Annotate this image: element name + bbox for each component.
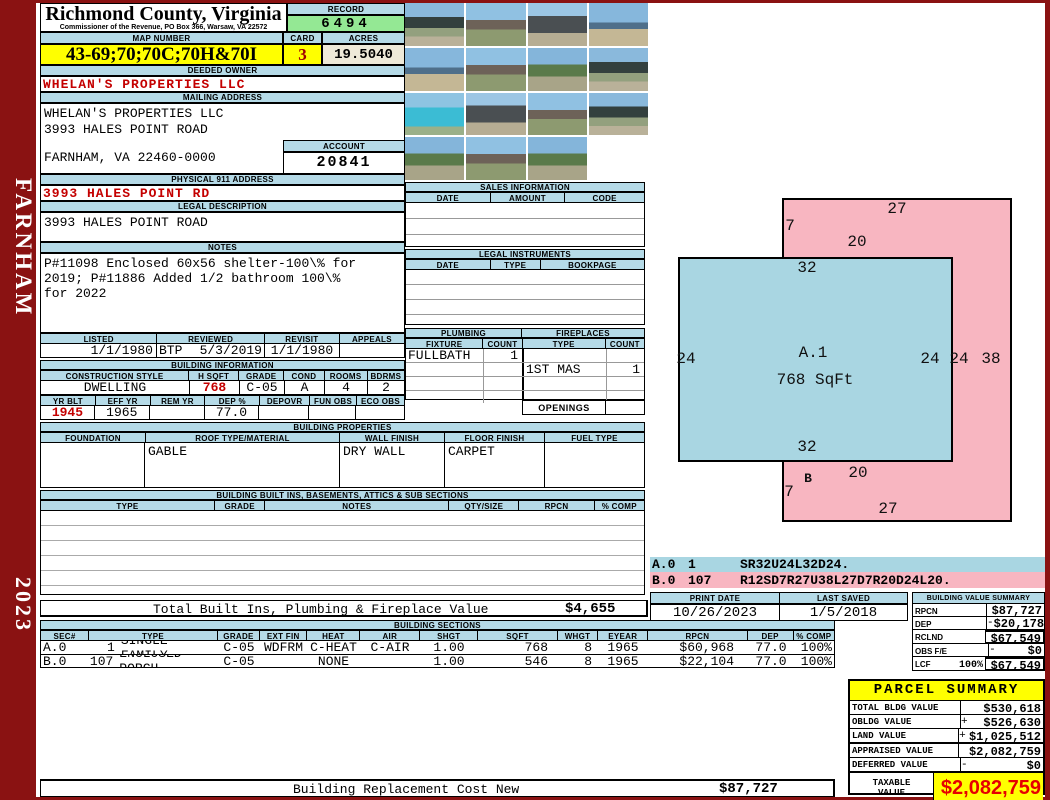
property-photo — [589, 48, 648, 91]
notes-header: NOTES — [40, 242, 405, 253]
last-saved-value: 1/5/2018 — [780, 604, 908, 621]
vector-row-a: A.0 1 SR32U24L32D24. — [650, 557, 1045, 572]
parcel-row-op: + — [961, 715, 971, 728]
property-photo — [405, 48, 464, 91]
effyr-value: 1965 — [95, 406, 150, 419]
row-type: ENCLOSED PORCH — [113, 655, 218, 667]
row-grade: C-05 — [218, 641, 260, 654]
bvs-value-row: - $0 — [989, 644, 1045, 657]
row-comp: 100% — [794, 641, 834, 654]
legal-description-value: 3993 HALES POINT ROAD — [40, 212, 405, 242]
parcel-row-op — [961, 701, 971, 714]
sketch-dim-label: 20 — [848, 464, 867, 482]
revisit-value: 1/1/1980 — [265, 344, 340, 357]
vector-sec: A.0 — [650, 557, 688, 572]
property-photo — [466, 93, 525, 136]
county-subtitle: Commissioner of the Revenue, PO Box 366,… — [41, 24, 286, 31]
dep-value: 77.0 — [205, 406, 260, 419]
card-header: CARD — [283, 32, 322, 44]
hsqft-value: 768 — [190, 381, 240, 394]
sales-row — [406, 219, 644, 235]
plumbing-count-value — [484, 363, 523, 376]
bvs-label: RPCN — [912, 604, 987, 617]
ecoobs-value — [356, 406, 404, 419]
parcel-summary-title: PARCEL SUMMARY — [850, 681, 1043, 701]
plumbing-count-value: 1 — [484, 349, 523, 362]
property-photo — [589, 3, 648, 46]
sketch-dim-label: 24 — [676, 350, 695, 368]
openings-label: OPENINGS — [522, 400, 606, 415]
row-num: 107 — [88, 655, 113, 667]
physical-address-header: PHYSICAL 911 ADDRESS — [40, 174, 405, 185]
plumbing-count-value — [484, 391, 523, 403]
row-num: 1 — [88, 641, 115, 654]
card-value: 3 — [283, 44, 322, 65]
sketch-section-b-name: B — [804, 471, 812, 486]
photo-grid — [405, 3, 648, 180]
built-ins-row — [41, 556, 644, 571]
sketch-dim-label: 27 — [878, 500, 897, 518]
record-value: 6494 — [287, 15, 405, 32]
row-heat: NONE — [307, 655, 360, 667]
fireplaces-header: FIREPLACES — [522, 328, 645, 338]
building-section-row: A.0 1 SINGLE FAMILY C-05 WDFRM C-HEAT C-… — [40, 640, 835, 654]
parcel-row-label: OBLDG VALUE — [850, 715, 961, 728]
bvs-value: $20,178 — [994, 617, 1046, 629]
row-sec: A.0 — [41, 641, 88, 654]
property-photo — [466, 3, 525, 46]
mailing-address-header: MAILING ADDRESS — [40, 92, 405, 103]
row-shgt: 1.00 — [420, 641, 478, 654]
bvs-label: LCF 100% — [912, 657, 986, 671]
parcel-row-op — [959, 744, 969, 757]
vector-num: 1 — [688, 557, 740, 572]
mailing-line-1: WHELAN'S PROPERTIES LLC — [41, 104, 404, 121]
building-properties-header: BUILDING PROPERTIES — [40, 422, 645, 432]
print-date-value: 10/26/2023 — [650, 604, 780, 621]
parcel-row-value: $526,630 — [971, 715, 1043, 728]
built-ins-rows — [40, 510, 645, 595]
total-built-ins-value: $4,655 — [565, 601, 615, 617]
row-grade: C-05 — [218, 655, 260, 667]
bvs-value: $67,549 — [991, 659, 1043, 669]
foundation-value — [41, 443, 145, 487]
bvs-value: $0 — [997, 644, 1044, 656]
deeded-owner-header: DEEDED OWNER — [40, 65, 405, 76]
remyr-value — [150, 406, 205, 419]
reviewed-date: 5/3/2019 — [200, 344, 262, 357]
row-whgt: 8 — [558, 641, 598, 654]
built-ins-row — [41, 586, 644, 598]
sales-information-header: SALES INFORMATION — [405, 182, 645, 192]
tax-year-vertical-label: 2023 — [0, 560, 36, 650]
row-sqft: 546 — [478, 655, 558, 667]
fireplace-type-value: 1ST MAS — [523, 363, 607, 376]
bvs-value: $87,727 — [992, 604, 1044, 616]
bvs-value: $67,549 — [991, 632, 1043, 642]
row-rpcn: $60,968 — [648, 641, 748, 654]
sales-row — [406, 235, 644, 248]
bvs-op: - — [989, 644, 997, 656]
row-comp: 100% — [794, 655, 834, 667]
taxable-label-line: VALUE — [850, 788, 933, 798]
yrblt-value: 1945 — [41, 406, 95, 419]
parcel-row-label: TOTAL BLDG VALUE — [850, 701, 961, 714]
reviewed-value: BTP 5/3/2019 — [157, 344, 265, 357]
record-header: RECORD — [287, 3, 405, 15]
property-photo — [528, 137, 587, 180]
sketch-dim-label: 24 — [920, 350, 939, 368]
total-built-ins-label: Total Built Ins, Plumbing & Fireplace Va… — [153, 602, 488, 617]
property-record-card: FARNHAM 2023 Richmond County, Virginia C… — [0, 0, 1050, 800]
property-photo — [405, 137, 464, 180]
vector-num: 107 — [688, 573, 740, 588]
appeals-value — [340, 344, 404, 357]
vector-row-b: B.0 107 R12SD7R27U38L27D7R20D24L20. — [650, 572, 1045, 588]
row-dep: 77.0 — [748, 641, 794, 654]
fuel-type-value — [545, 443, 644, 487]
county-title: Richmond County, Virginia — [41, 4, 286, 24]
account-header: ACCOUNT — [283, 140, 405, 152]
building-information-header: BUILDING INFORMATION — [40, 360, 405, 370]
row-dep: 77.0 — [748, 655, 794, 667]
building-section-row: B.0 107 ENCLOSED PORCH C-05 NONE 1.00 54… — [40, 654, 835, 668]
plumbing-fixture-value: FULLBATH — [406, 349, 484, 362]
parcel-row-op: - — [961, 758, 971, 771]
bvs-label: OBS F/E — [912, 644, 989, 657]
row-eyear: 1965 — [598, 641, 648, 654]
total-built-ins-row: Total Built Ins, Plumbing & Fireplace Va… — [40, 600, 648, 617]
sales-row — [406, 203, 644, 219]
fireplace-type-value — [523, 377, 607, 390]
parcel-row-label: APPRAISED VALUE — [850, 744, 959, 757]
bdrms-value: 2 — [368, 381, 404, 394]
bvs-value-row: $67,549 — [986, 630, 1045, 644]
parcel-row-value: $0 — [971, 758, 1043, 771]
parcel-row-value: $2,082,759 — [969, 744, 1043, 757]
wall-finish-value: DRY WALL — [340, 443, 445, 487]
taxable-value-label: TAXABLE VALUE — [850, 773, 934, 800]
depovr-value — [259, 406, 309, 419]
plumbing-header: PLUMBING — [405, 328, 522, 338]
rooms-value: 4 — [325, 381, 368, 394]
bvs-value-row: - $20,178 — [987, 617, 1045, 630]
grade-value: C-05 — [240, 381, 285, 394]
funobs-value — [309, 406, 356, 419]
print-date-header: PRINT DATE — [650, 592, 780, 604]
acres-value: 19.5040 — [322, 44, 405, 65]
sketch-dim-label: 7 — [785, 217, 795, 235]
instrument-row — [406, 315, 644, 327]
parcel-row-op: + — [959, 729, 969, 742]
fireplace-type-value — [523, 349, 607, 362]
bvs-value-row: $87,727 — [987, 604, 1045, 617]
row-heat: C-HEAT — [307, 641, 360, 654]
account-value: 20841 — [283, 152, 405, 174]
last-saved-header: LAST SAVED — [780, 592, 908, 604]
property-photo — [528, 93, 587, 136]
parcel-row-label: DEFERRED VALUE — [850, 758, 961, 771]
parcel-row-value: $1,025,512 — [969, 729, 1043, 742]
floor-finish-value: CARPET — [445, 443, 545, 487]
sketch-dim-label: 27 — [887, 200, 906, 218]
sales-rows — [405, 202, 645, 247]
map-number-value: 43-69;70;70C;70H&70I — [40, 44, 283, 65]
plumbing-fixture-value — [406, 391, 484, 403]
sketch-dim-label: 38 — [981, 350, 1000, 368]
built-ins-row — [41, 541, 644, 556]
reviewed-by: BTP — [159, 344, 182, 357]
physical-address-value: 3993 HALES POINT RD — [40, 185, 405, 201]
property-photo — [589, 93, 648, 136]
property-photo — [405, 93, 464, 136]
acres-header: ACRES — [322, 32, 405, 44]
sketch-dim-label: 32 — [797, 438, 816, 456]
mailing-line-2: 3993 HALES POINT ROAD — [41, 121, 404, 137]
property-photo — [528, 48, 587, 91]
listed-value: 1/1/1980 — [41, 344, 157, 357]
replacement-cost-bar: Building Replacement Cost New $87,727 — [40, 779, 835, 797]
sketch-section-a-name: A.1 — [799, 344, 828, 362]
notes-box: P#11098 Enclosed 60x56 shelter-100\% for… — [40, 253, 405, 333]
sketch-dim-label: 7 — [784, 483, 794, 501]
replacement-cost-label: Building Replacement Cost New — [293, 782, 519, 797]
instrument-row — [406, 300, 644, 315]
fireplace-count-value — [607, 349, 644, 362]
county-header: Richmond County, Virginia Commissioner o… — [40, 3, 287, 32]
property-photo — [405, 3, 464, 46]
bvs-label: DEP — [912, 617, 987, 630]
notes-line-1: P#11098 Enclosed 60x56 shelter-100\% for — [41, 254, 404, 271]
row-extfin: WDFRM — [260, 641, 307, 654]
built-ins-header: BUILDING BUILT INS, BASEMENTS, ATTICS & … — [40, 490, 645, 500]
fireplace-count-value — [607, 377, 644, 390]
legal-instruments-header: LEGAL INSTRUMENTS — [405, 249, 645, 259]
property-photo — [466, 48, 525, 91]
bvs-label-text: LCF — [915, 660, 931, 670]
parcel-row-label: LAND VALUE — [850, 729, 959, 742]
row-air: C-AIR — [360, 641, 420, 654]
parcel-row-value: $530,618 — [971, 701, 1043, 714]
deeded-owner-value: WHELAN'S PROPERTIES LLC — [40, 76, 405, 92]
notes-line-2: 2019; P#11886 Added 1/2 bathroom 100\% — [41, 271, 404, 286]
legal-description-header: LEGAL DESCRIPTION — [40, 201, 405, 212]
instrument-rows — [405, 269, 645, 325]
bvs-label-pct: 100% — [959, 660, 985, 670]
instrument-row — [406, 270, 644, 285]
construction-style-value: DWELLING — [41, 381, 190, 394]
row-extfin — [260, 655, 307, 667]
built-ins-row — [41, 526, 644, 541]
replacement-cost-value: $87,727 — [719, 781, 778, 797]
row-type: SINGLE FAMILY — [115, 641, 218, 654]
built-ins-row — [41, 511, 644, 526]
row-whgt: 8 — [558, 655, 598, 667]
row-rpcn: $22,104 — [648, 655, 748, 667]
vector-path: R12SD7R27U38L27D7R20D24L20. — [740, 573, 951, 588]
openings-value — [605, 400, 645, 415]
sketch-dim-label: 24 — [949, 350, 968, 368]
taxable-label-line: TAXABLE — [850, 778, 933, 788]
sketch-dim-label: 20 — [847, 233, 866, 251]
plumbing-fixture-value — [406, 363, 484, 376]
bvs-op: - — [987, 617, 994, 629]
map-number-header: MAP NUMBER — [40, 32, 283, 44]
taxable-value: $2,082,759 — [934, 773, 1043, 800]
notes-line-3: for 2022 — [41, 286, 404, 301]
plumbing-fixture-value — [406, 377, 484, 390]
property-photo — [528, 3, 587, 46]
parcel-summary: PARCEL SUMMARY TOTAL BLDG VALUE $530,618… — [848, 679, 1045, 795]
sketch-section-a-sqft: 768 SqFt — [777, 371, 854, 389]
building-sections-header: BUILDING SECTIONS — [40, 620, 835, 630]
row-air — [360, 655, 420, 667]
instrument-row — [406, 285, 644, 300]
property-photo — [466, 137, 525, 180]
building-value-summary: RPCN $87,727 DEP - $20,178 RCLND $67,549… — [912, 604, 1045, 671]
vector-sec: B.0 — [650, 573, 688, 588]
row-eyear: 1965 — [598, 655, 648, 667]
row-sec: B.0 — [41, 655, 88, 667]
bvs-label: RCLND — [912, 630, 986, 644]
fireplace-count-value: 1 — [607, 363, 644, 376]
bvs-value-row: $67,549 — [986, 657, 1045, 671]
built-ins-row — [41, 571, 644, 586]
vector-path: SR32U24L32D24. — [740, 557, 849, 572]
row-sqft: 768 — [478, 641, 558, 654]
row-shgt: 1.00 — [420, 655, 478, 667]
building-value-summary-header: BUILDING VALUE SUMMARY — [912, 592, 1045, 604]
plumbing-count-value — [484, 377, 523, 390]
sketch-dim-label: 32 — [797, 259, 816, 277]
district-vertical-label: FARNHAM — [0, 175, 36, 320]
cond-value: A — [285, 381, 325, 394]
roof-value: GABLE — [145, 443, 340, 487]
